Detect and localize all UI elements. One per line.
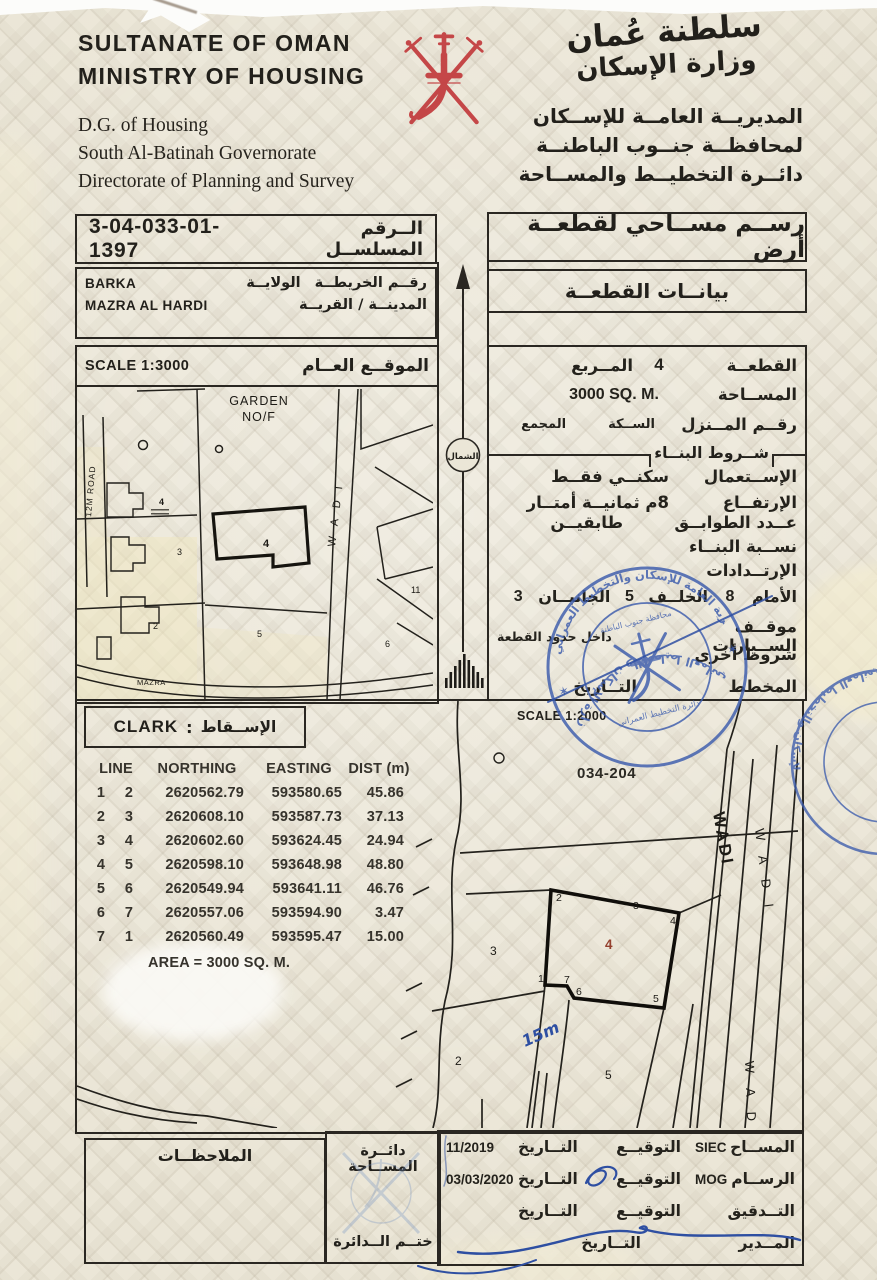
notes-title: الملاحظــات xyxy=(86,1146,324,1165)
draftsman-name: MOG xyxy=(695,1172,737,1187)
plot-data-title: بيانــات القطعــة xyxy=(565,279,729,303)
ar-dept-line1: المديريــة العامــة للإســكان xyxy=(487,102,803,131)
area-row: المســاحة 3000 SQ. M. xyxy=(489,385,805,404)
surveyor-name: SIEC xyxy=(695,1140,737,1155)
floors-value: طابقيــن xyxy=(550,513,623,532)
serial-label: الــرقم المسلســل xyxy=(263,218,423,260)
date-label: التــاريخ xyxy=(581,1234,641,1252)
directorate-en: D.G. of Housing South Al-Batinah Governo… xyxy=(78,112,354,196)
use-label: الإســتعمال xyxy=(669,467,797,486)
scanned-survey-document: SULTANATE OF OMAN MINISTRY OF HOUSING D.… xyxy=(0,0,877,1280)
office-title: دائــرة المســاحة xyxy=(327,1143,439,1175)
scale-bars xyxy=(445,654,484,688)
detail-map-labels: WADI W A D I W A D I 1 2 3 4 5 6 7 4 2 3… xyxy=(455,810,777,1128)
vertex-7: 7 xyxy=(564,974,570,986)
map-number-label: رقــم الخريطــة xyxy=(315,275,427,291)
setback-values-row: الأمام 8 الخلــف 5 الجانبــان 3 xyxy=(489,587,805,606)
house-number-label: رقــم المــنزل xyxy=(679,415,797,434)
ratio-row: نســبة البنــاء xyxy=(489,537,805,556)
title-line1: SULTANATE OF OMAN xyxy=(78,30,365,57)
north-arrow-strip: الشمال xyxy=(437,262,489,698)
vertex-3: 3 xyxy=(633,900,639,912)
subject-plot-outline xyxy=(213,507,309,567)
garden-label2: NO/F xyxy=(242,410,276,424)
height-row: الإرتفــاع 8م ثمانيــة أمتــار xyxy=(489,493,805,512)
vertex-1: 1 xyxy=(538,973,544,985)
draftsman-date: 03/03/2020 xyxy=(446,1172,512,1187)
ar-dept-line3: دائــرة التخطيــط والمســاحة xyxy=(487,160,803,189)
directorate-ar: المديريــة العامــة للإســكان لمحافظــة … xyxy=(487,102,803,189)
plot-5-label: 5 xyxy=(257,629,262,639)
plan-label: المخطط xyxy=(711,677,797,696)
date-label: التــاريخ xyxy=(518,1138,578,1156)
street-label: الســكة xyxy=(608,417,655,432)
sides-value: 3 xyxy=(498,588,538,606)
wilaya-value: BARKA xyxy=(85,276,136,291)
plan-date-row: المخطط التــاريخ xyxy=(489,677,805,696)
floors-label: عــدد الطوابــق xyxy=(669,513,797,532)
back-value: 5 xyxy=(610,588,648,606)
wadi-spaced-label: W A D I xyxy=(752,828,777,915)
neighbor-2: 2 xyxy=(455,1054,462,1068)
plot-center-number: 4 xyxy=(605,937,613,952)
house-row: رقــم المــنزل الســكة المجمع xyxy=(489,415,805,434)
plot-number-value: 4 xyxy=(639,355,679,375)
document-title-box: رســم مســاحي لقطعــة أرض xyxy=(487,212,807,262)
height-label: الإرتفــاع xyxy=(669,493,797,512)
audit-label: التــدقيق xyxy=(737,1202,795,1220)
ministry-title-en: SULTANATE OF OMAN MINISTRY OF HOUSING xyxy=(78,30,365,90)
general-map: GARDEN NO/F W A D I 12M ROAD MAZRA 4 3 2… xyxy=(77,387,433,700)
plot-11-label: 11 xyxy=(411,585,420,595)
use-value: سكنــي فقــط xyxy=(551,467,669,486)
back-label: الخلــف xyxy=(648,587,708,606)
office-seal-box: دائــرة المســاحة ختــم الــدائرة xyxy=(325,1131,441,1264)
plot-number-row: القطعــة 4 المــربع xyxy=(489,355,805,375)
neighbor-3: 3 xyxy=(490,944,497,958)
serial-value: 3-04-033-01-1397 xyxy=(89,215,263,263)
garden-label: GARDEN xyxy=(229,394,288,408)
vertex-2: 2 xyxy=(556,892,562,904)
other-conditions-row: شروط أخرى xyxy=(489,645,805,664)
draftsman-row: الرســام MOG التوقيــع التــاريخ 03/03/2… xyxy=(439,1170,802,1188)
building-conditions-title: شــروط البنــاء xyxy=(651,444,772,462)
paper-stain xyxy=(795,565,877,720)
plot-2-label: 2 xyxy=(153,621,158,631)
signatures-box: المســاح SIEC التوقيــع التــاريخ 11/201… xyxy=(437,1130,804,1266)
setback-row: الإرتــدادات xyxy=(489,561,805,580)
town-label: المدينــة / القريــة xyxy=(299,297,427,313)
draftsman-label: الرســام xyxy=(737,1170,795,1188)
floors-row: عــدد الطوابــق طابقيــن xyxy=(489,513,805,532)
audit-row: التــدقيق التوقيــع التــاريخ xyxy=(439,1202,802,1220)
square-label: المــربع xyxy=(571,356,633,375)
north-label: الشمال xyxy=(447,452,478,462)
wadi-vertical-label: W A D I xyxy=(742,1061,760,1128)
signature-label: التوقيــع xyxy=(616,1138,681,1156)
plot-4-small-label: 4 xyxy=(159,497,164,507)
notes-box: الملاحظــات xyxy=(84,1138,326,1264)
director-row: المــدير التــاريخ xyxy=(439,1234,802,1252)
wadi-label: W A D I xyxy=(326,482,346,548)
plan-date-label: التــاريخ xyxy=(573,677,637,696)
roads-and-wadi-lines xyxy=(77,701,798,1128)
date-label: التــاريخ xyxy=(518,1170,578,1188)
dept-line3: Directorate of Planning and Survey xyxy=(78,168,354,196)
plot-4-label: 4 xyxy=(263,538,270,550)
document-title: رســم مســاحي لقطعــة أرض xyxy=(489,211,805,263)
vertex-6: 6 xyxy=(576,986,582,998)
plot-label: القطعــة xyxy=(679,356,797,375)
general-map-box: SCALE 1:3000 الموقــع العــام xyxy=(75,345,439,704)
dept-line1: D.G. of Housing xyxy=(78,112,354,140)
seal-label: ختــم الــدائرة xyxy=(327,1234,439,1250)
detail-map: WADI W A D I W A D I 1 2 3 4 5 6 7 4 2 3… xyxy=(77,701,798,1128)
parking-value: داخل حدود القطعة xyxy=(497,629,612,644)
ministry-calligraphy: سلطنة عُمان وزارة الإسكان xyxy=(518,4,812,90)
serial-number-box: الــرقم المسلســل 3-04-033-01-1397 xyxy=(75,214,437,264)
surveyor-date: 11/2019 xyxy=(446,1140,512,1155)
wilaya-label: الولايــة xyxy=(246,275,300,291)
front-label: الأمام xyxy=(752,587,797,606)
mazra-label: MAZRA xyxy=(137,678,166,687)
setback-label: الإرتــدادات xyxy=(706,561,797,580)
plot-3-label: 3 xyxy=(177,547,182,557)
surveyor-label: المســاح xyxy=(737,1138,795,1156)
title-line2: MINISTRY OF HOUSING xyxy=(78,63,365,90)
north-arrow: الشمال xyxy=(439,262,487,698)
ratio-label: نســبة البنــاء xyxy=(689,537,797,556)
surveyor-row: المســاح SIEC التوقيــع التــاريخ 11/201… xyxy=(439,1138,802,1156)
oman-emblem-icon xyxy=(402,28,486,138)
plot-data-title-box: بيانــات القطعــة xyxy=(487,269,807,313)
ar-dept-line2: لمحافظــة جنــوب الباطنــة xyxy=(487,131,803,160)
wadi-bold-label: WADI xyxy=(709,810,737,867)
other-conditions-label: شروط أخرى xyxy=(694,645,797,664)
area-label: المســاحة xyxy=(669,385,797,404)
location-box: رقــم الخريطــة الولايــة BARKA المدينــ… xyxy=(75,267,437,339)
use-row: الإســتعمال سكنــي فقــط xyxy=(489,467,805,486)
signature-label: التوقيــع xyxy=(616,1202,681,1220)
detail-map-box: WADI W A D I W A D I 1 2 3 4 5 6 7 4 2 3… xyxy=(75,699,804,1134)
dept-line2: South Al-Batinah Governorate xyxy=(78,140,354,168)
neighbor-5: 5 xyxy=(605,1068,612,1082)
area-value: 3000 SQ. M. xyxy=(559,386,669,404)
height-value: 8م ثمانيــة أمتــار xyxy=(527,493,669,512)
front-value: 8 xyxy=(708,588,752,606)
complex-label: المجمع xyxy=(521,417,566,432)
plot-data-panel: القطعــة 4 المــربع المســاحة 3000 SQ. M… xyxy=(487,345,807,701)
paper-stain xyxy=(0,140,40,1060)
general-map-scale: SCALE 1:3000 xyxy=(85,358,189,374)
signature-label: التوقيــع xyxy=(616,1170,681,1188)
sides-label: الجانبــان xyxy=(538,587,610,606)
director-label: المــدير xyxy=(737,1234,795,1252)
vertex-4: 4 xyxy=(670,915,676,927)
vertex-5: 5 xyxy=(653,993,659,1005)
town-value: MAZRA AL HARDI xyxy=(85,298,208,313)
general-map-title: الموقــع العــام xyxy=(302,356,429,376)
building-conditions-divider: شــروط البنــاء xyxy=(489,444,805,467)
plot-6-label: 6 xyxy=(385,639,390,649)
date-label: التــاريخ xyxy=(518,1202,578,1220)
